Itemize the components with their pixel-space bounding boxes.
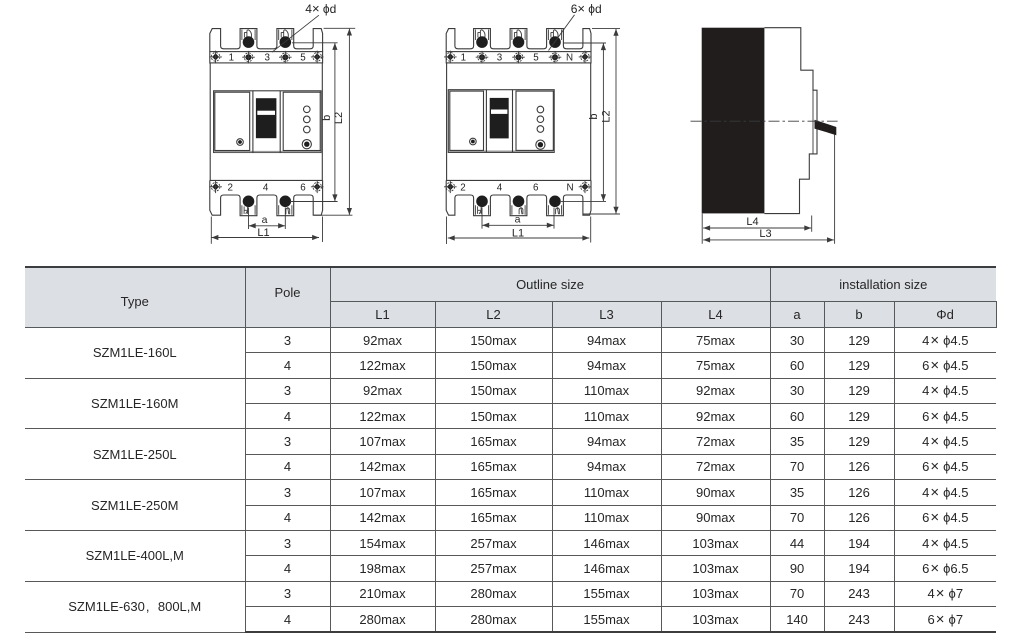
svg-text:a: a [515, 213, 521, 225]
svg-text:L2: L2 [333, 112, 345, 124]
svg-text:5: 5 [533, 53, 539, 64]
svg-text:L1: L1 [512, 227, 524, 239]
svg-text:3: 3 [264, 53, 270, 64]
svg-text:6: 6 [533, 182, 539, 193]
svg-text:L4: L4 [746, 216, 758, 228]
svg-text:L3: L3 [759, 228, 771, 240]
svg-text:6: 6 [300, 182, 306, 193]
svg-text:L2: L2 [601, 110, 613, 122]
svg-text:3: 3 [497, 53, 503, 64]
svg-text:N: N [566, 182, 573, 193]
svg-text:4: 4 [263, 182, 269, 193]
svg-text:b: b [588, 113, 600, 119]
svg-text:1: 1 [229, 53, 234, 64]
svg-text:L1: L1 [257, 227, 269, 239]
svg-text:5: 5 [300, 53, 306, 64]
svg-text:a: a [262, 214, 268, 226]
svg-text:4: 4 [497, 182, 503, 193]
svg-text:1: 1 [461, 53, 466, 64]
svg-text:2: 2 [227, 182, 232, 193]
svg-text:6× ϕd: 6× ϕd [571, 1, 602, 16]
svg-text:2: 2 [460, 182, 465, 193]
svg-text:N: N [566, 53, 573, 64]
svg-text:b: b [321, 115, 333, 121]
svg-text:4× ϕd: 4× ϕd [305, 1, 336, 16]
